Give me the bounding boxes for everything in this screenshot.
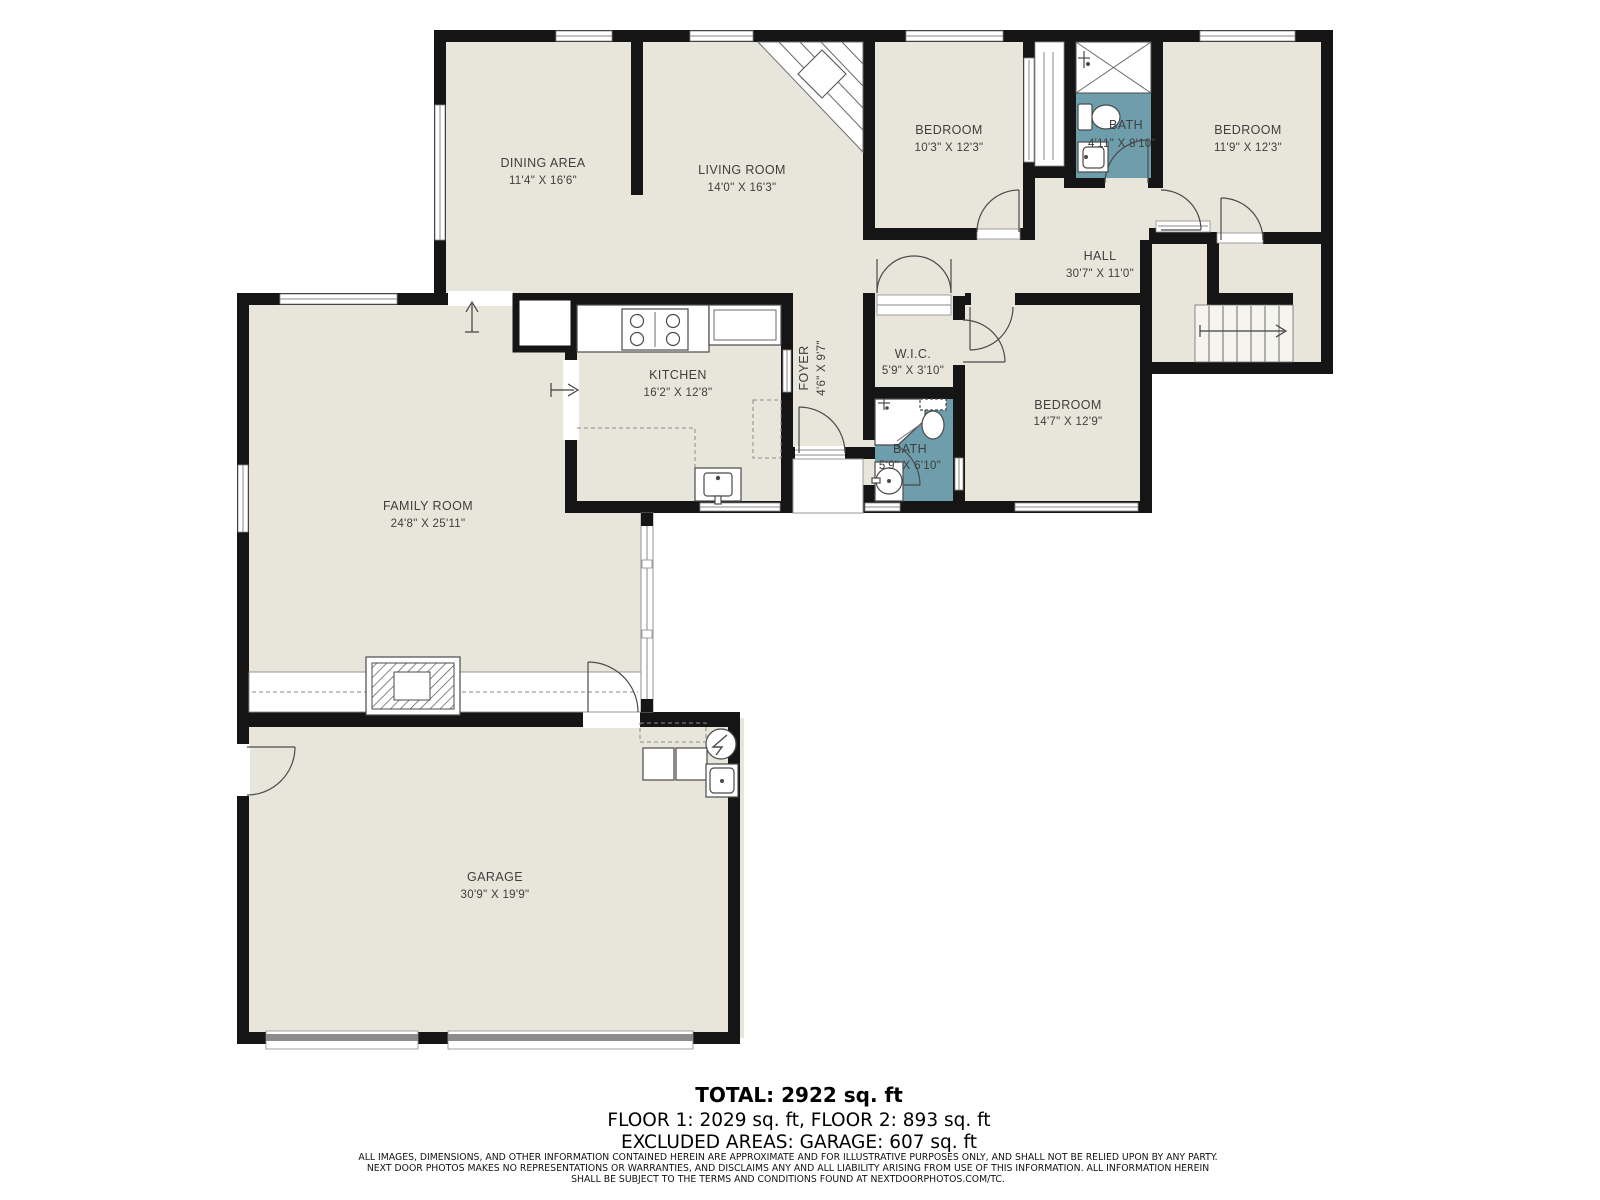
svg-text:BATH: BATH: [893, 442, 927, 456]
toilet-icon: [920, 399, 946, 439]
svg-text:BEDROOM: BEDROOM: [1034, 398, 1101, 412]
window: [435, 105, 445, 240]
window: [955, 458, 963, 490]
entry-porch: [793, 459, 863, 513]
svg-text:30'9" X 19'9": 30'9" X 19'9": [461, 889, 530, 901]
door-sill: [977, 229, 1020, 239]
water-heater-icon: [706, 729, 736, 759]
garage-door: [448, 1031, 693, 1049]
window: [690, 31, 753, 41]
stove-icon: [622, 309, 688, 350]
svg-text:10'3" X 12'3": 10'3" X 12'3": [915, 142, 984, 154]
svg-text:DINING AREA: DINING AREA: [501, 156, 586, 170]
dryer-icon: [676, 748, 707, 780]
window: [906, 31, 1003, 41]
svg-text:BEDROOM: BEDROOM: [915, 123, 982, 137]
svg-text:5'9" X 6'10": 5'9" X 6'10": [879, 460, 941, 472]
step-opening-kitchen: [563, 360, 579, 440]
step-opening-dining: [448, 291, 513, 306]
staircase-main: [1195, 305, 1293, 362]
svg-text:4'6" X 9'7": 4'6" X 9'7": [816, 340, 828, 396]
excluded-areas-text: EXCLUDED AREAS: GARAGE: 607 sq. ft: [621, 1132, 977, 1153]
svg-text:W.I.C.: W.I.C.: [895, 347, 931, 361]
window: [783, 350, 791, 392]
svg-text:FOYER: FOYER: [797, 345, 811, 390]
disclaimer-line: ALL IMAGES, DIMENSIONS, AND OTHER INFORM…: [358, 1152, 1217, 1163]
svg-text:5'9" X 3'10": 5'9" X 3'10": [882, 365, 944, 377]
floor-areas: [243, 36, 1327, 1038]
door-opening-garage-side: [236, 744, 250, 796]
entry-door-sill: [795, 446, 845, 460]
svg-text:4'11" X 8'10": 4'11" X 8'10": [1088, 138, 1156, 150]
washer-icon: [643, 748, 674, 780]
svg-text:30'7" X 11'0": 30'7" X 11'0": [1066, 268, 1134, 280]
floor-plan-page: DINING AREA11'4" X 16'6" LIVING ROOM14'0…: [0, 0, 1600, 1200]
svg-text:KITCHEN: KITCHEN: [649, 368, 707, 382]
svg-text:11'9" X 12'3": 11'9" X 12'3": [1214, 142, 1282, 154]
utility-sink-icon: [706, 764, 738, 797]
shower-icon: [1076, 42, 1151, 93]
window: [238, 465, 248, 532]
door-sill: [1217, 233, 1263, 243]
kitchen-sink-icon: [695, 468, 741, 504]
svg-text:16'2" X 12'8": 16'2" X 12'8": [644, 387, 713, 399]
svg-text:FAMILY ROOM: FAMILY ROOM: [383, 499, 473, 513]
garage-door: [266, 1031, 418, 1049]
svg-text:14'7" X 12'9": 14'7" X 12'9": [1034, 416, 1103, 428]
svg-text:11'4" X 16'6": 11'4" X 16'6": [509, 175, 577, 187]
total-area-text: TOTAL: 2922 sq. ft: [695, 1083, 903, 1107]
floor-plan-canvas: DINING AREA11'4" X 16'6" LIVING ROOM14'0…: [0, 0, 1600, 1200]
disclaimer-line: SHALL BE SUBJECT TO THE TERMS AND CONDIT…: [571, 1174, 1005, 1185]
window: [700, 503, 780, 511]
pantry-closet: [516, 297, 574, 349]
disclaimer-line: NEXT DOOR PHOTOS MAKES NO REPRESENTATION…: [367, 1163, 1209, 1174]
svg-text:BEDROOM: BEDROOM: [1214, 123, 1281, 137]
door-opening-garage-family: [583, 711, 640, 728]
fireplace-icon: [366, 657, 460, 715]
svg-text:GARAGE: GARAGE: [467, 870, 523, 884]
svg-text:LIVING ROOM: LIVING ROOM: [698, 163, 786, 177]
svg-text:BATH: BATH: [1109, 118, 1143, 132]
svg-text:HALL: HALL: [1084, 249, 1117, 263]
window: [865, 503, 900, 511]
floor-areas-text: FLOOR 1: 2029 sq. ft, FLOOR 2: 893 sq. f…: [607, 1110, 990, 1131]
window: [556, 31, 612, 41]
svg-text:24'8" X 25'11": 24'8" X 25'11": [391, 518, 466, 530]
garage-doors: [266, 1031, 693, 1049]
svg-text:14'0" X 16'3": 14'0" X 16'3": [708, 182, 777, 194]
window: [1200, 31, 1295, 41]
linen-closet: [1035, 42, 1064, 166]
window: [1015, 503, 1138, 511]
window: [280, 294, 397, 304]
summary-block: TOTAL: 2922 sq. ft FLOOR 1: 2029 sq. ft,…: [358, 1083, 1217, 1185]
